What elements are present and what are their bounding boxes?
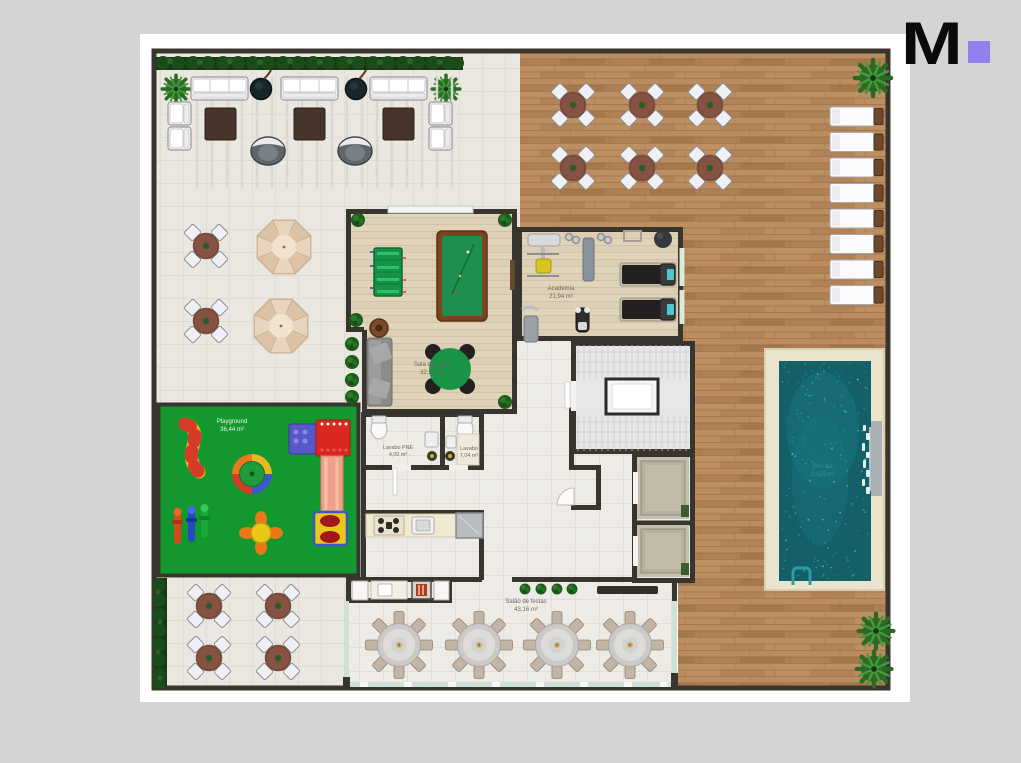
svg-text:Lavabo: Lavabo — [460, 446, 478, 452]
svg-text:43,16 m²: 43,16 m² — [514, 607, 538, 613]
svg-text:4,00 m²: 4,00 m² — [389, 452, 407, 458]
svg-text:21,94 m²: 21,94 m² — [549, 294, 573, 300]
svg-text:Lavabo PNE: Lavabo PNE — [383, 445, 414, 451]
svg-text:M: M — [901, 11, 963, 78]
svg-text:Sala de jogos: Sala de jogos — [414, 362, 450, 368]
svg-text:21,75 m²: 21,75 m² — [811, 472, 835, 478]
svg-text:32,53 m²: 32,53 m² — [420, 370, 444, 376]
svg-text:Playground: Playground — [217, 419, 247, 425]
svg-text:Academia: Academia — [548, 286, 575, 292]
svg-text:7,04 m²: 7,04 m² — [460, 453, 478, 459]
svg-text:Salão de festas: Salão de festas — [505, 599, 546, 605]
svg-text:Piscina: Piscina — [813, 464, 833, 470]
svg-text:36,44 m²: 36,44 m² — [220, 427, 244, 433]
